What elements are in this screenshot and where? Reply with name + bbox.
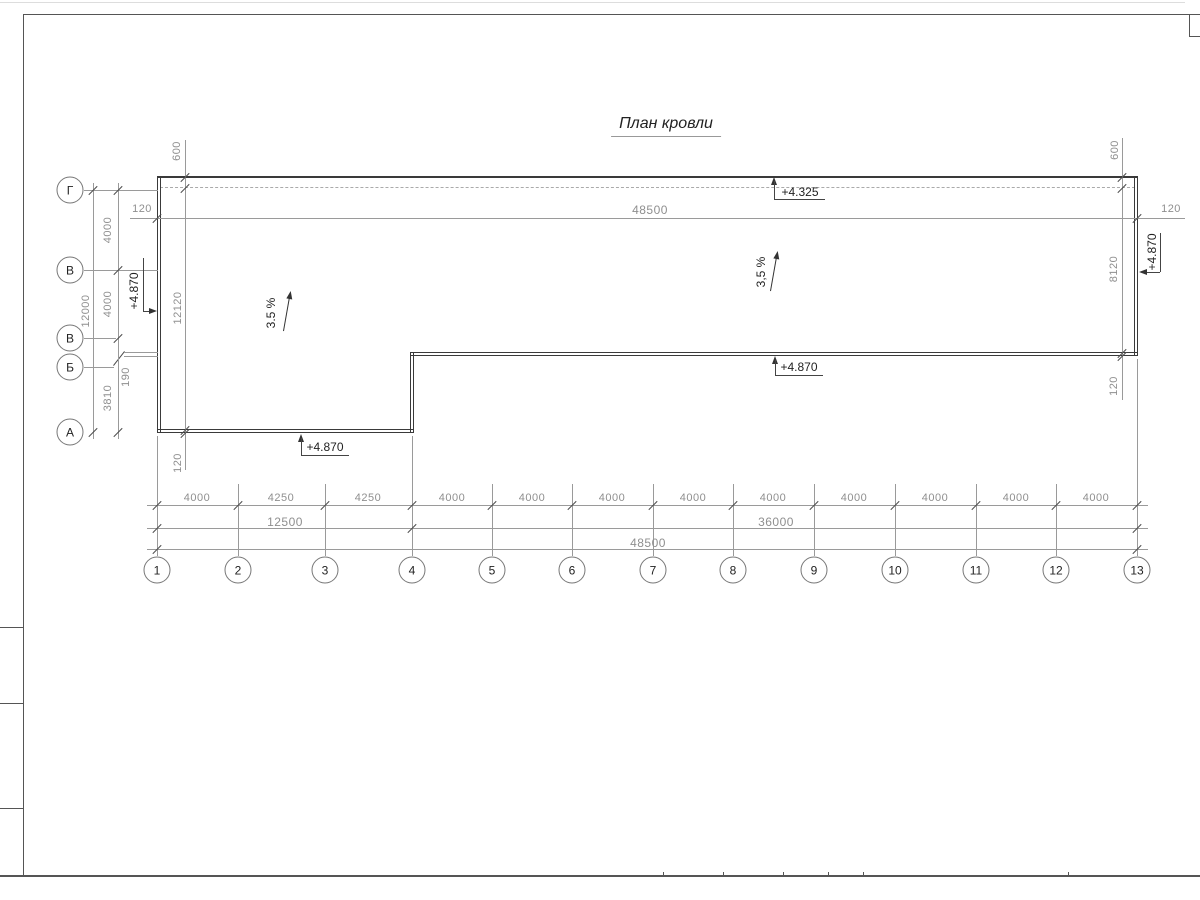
elevation-leader [1160, 233, 1161, 272]
titleblock-tick [828, 872, 829, 876]
elevation-leader [301, 438, 302, 455]
axis-line-v1 [84, 270, 158, 271]
slope-arrow [286, 291, 293, 300]
frame-margin-tick [0, 703, 23, 704]
dim-right-height: 8120 [1108, 256, 1120, 282]
axis-extension-12 [1056, 484, 1057, 556]
axis-extension-6 [572, 484, 573, 556]
dim-top-right-offset: 120 [1161, 203, 1181, 215]
elevation-leader [775, 360, 776, 375]
axis-extension-3 [325, 484, 326, 556]
dim-bay-8: 4000 [760, 492, 786, 504]
slope-arrow [773, 251, 780, 260]
dim-right-overhang: 600 [1109, 140, 1121, 160]
axis-bubble-g: Г [57, 177, 84, 204]
titleblock-tick [723, 872, 724, 876]
dim-bay-12: 4000 [1083, 492, 1109, 504]
slope-arrow-shaft [283, 295, 290, 332]
frame-top-border [23, 14, 1192, 15]
elevation-right-wall: +4.870 [1145, 233, 1159, 270]
axis-bubble-5: 5 [479, 557, 506, 584]
dim-line-left-overall [185, 140, 186, 470]
elevation-arrow [149, 308, 157, 314]
dim-left-seg3: 190 [120, 367, 132, 387]
axis-extension-11 [976, 484, 977, 556]
elevation-left-wall: +4.870 [127, 272, 141, 309]
axis-bubble-6: 6 [559, 557, 586, 584]
axis-bubble-3: 3 [312, 557, 339, 584]
slope-arrow-shaft [770, 255, 777, 292]
axis-line-v2 [84, 338, 116, 339]
axis-line-b [84, 367, 114, 368]
elevation-leader [1147, 272, 1160, 273]
dim-group-left: 12500 [267, 515, 303, 529]
axis-line-g [84, 190, 158, 191]
axis-bubble-7: 7 [640, 557, 667, 584]
elevation-leader [775, 375, 823, 376]
dim-line-left-total [93, 183, 94, 439]
titleblock-tick [863, 872, 864, 876]
titleblock-tick [1068, 872, 1069, 876]
dim-left-parapet: 120 [172, 453, 184, 473]
parapet-right [1134, 176, 1138, 356]
axis-bubble-2: 2 [225, 557, 252, 584]
dim-group-right: 36000 [758, 515, 794, 529]
axis-bubble-13: 13 [1124, 557, 1151, 584]
frame-left-border [23, 14, 24, 876]
dim-bay-3: 4250 [355, 492, 381, 504]
roof-edge-top [157, 176, 1138, 178]
dim-left-overhang: 600 [171, 141, 183, 161]
axis-extension-2 [238, 484, 239, 556]
axis-extension-8 [733, 484, 734, 556]
axis-bubble-9: 9 [801, 557, 828, 584]
dim-left-overall: 12120 [172, 291, 184, 324]
dim-left-seg1: 4000 [102, 217, 114, 243]
axis-bubble-8: 8 [720, 557, 747, 584]
axis-bubble-12: 12 [1043, 557, 1070, 584]
dim-bay-4: 4000 [439, 492, 465, 504]
axis-extension-1 [157, 436, 158, 556]
paper-edge-line [0, 2, 1185, 3]
dim-top-left-offset: 120 [132, 203, 152, 215]
elevation-step-bottom: +4.870 [780, 360, 817, 374]
roof-dashed-line [160, 187, 1135, 188]
dim-bay-1: 4000 [184, 492, 210, 504]
axis-bubble-v1: В [57, 257, 84, 284]
dim-line-top [130, 218, 1185, 219]
slope-label-left: 3.5 % [264, 298, 278, 329]
dim-bottom-total: 48500 [630, 536, 666, 550]
drawing-sheet: План кровли 48500 120 120 12000 4000 400… [0, 0, 1200, 900]
dim-line-bays [147, 505, 1148, 506]
dim-bay-11: 4000 [1003, 492, 1029, 504]
dim-bay-2: 4250 [268, 492, 294, 504]
elevation-leader [774, 181, 775, 199]
frame-corner-box [1189, 14, 1200, 37]
elevation-leader [301, 455, 349, 456]
dim-left-seg4: 3810 [102, 385, 114, 411]
dim-line-left-segments [118, 183, 119, 439]
axis-bubble-v2: В [57, 325, 84, 352]
axis-bubble-1: 1 [144, 557, 171, 584]
dim-bay-7: 4000 [680, 492, 706, 504]
dim-right-parapet: 120 [1108, 376, 1120, 396]
axis-extension-5 [492, 484, 493, 556]
axis-bubble-4: 4 [399, 557, 426, 584]
axis-bubble-b: Б [57, 354, 84, 381]
axis-extension-10 [895, 484, 896, 556]
parapet-bottom-left-wing [157, 429, 414, 433]
titleblock-tick [663, 872, 664, 876]
elevation-leader [774, 199, 825, 200]
drawing-title: План кровли [611, 115, 721, 137]
frame-margin-tick [0, 808, 23, 809]
dim-bay-9: 4000 [841, 492, 867, 504]
axis-extension-4 [412, 436, 413, 556]
elevation-top: +4.325 [781, 185, 818, 199]
axis-jog-line [124, 356, 158, 357]
elevation-leader [143, 258, 144, 311]
frame-bottom-border [0, 875, 1200, 877]
axis-jog-line [124, 352, 158, 353]
frame-margin-tick [0, 627, 23, 628]
dim-top-total: 48500 [632, 203, 668, 217]
axis-jog-slash [113, 351, 125, 366]
dim-left-total: 12000 [80, 294, 92, 327]
axis-extension-9 [814, 484, 815, 556]
dim-bay-6: 4000 [599, 492, 625, 504]
dim-left-seg2: 4000 [102, 291, 114, 317]
dim-bay-5: 4000 [519, 492, 545, 504]
parapet-step [410, 352, 414, 433]
elevation-arrow [1139, 269, 1147, 275]
axis-bubble-a: А [57, 419, 84, 446]
dim-bay-10: 4000 [922, 492, 948, 504]
axis-bubble-11: 11 [963, 557, 990, 584]
titleblock-tick [783, 872, 784, 876]
slope-label-right: 3,5 % [754, 257, 768, 288]
axis-bubble-10: 10 [882, 557, 909, 584]
elevation-left-bottom: +4.870 [306, 440, 343, 454]
